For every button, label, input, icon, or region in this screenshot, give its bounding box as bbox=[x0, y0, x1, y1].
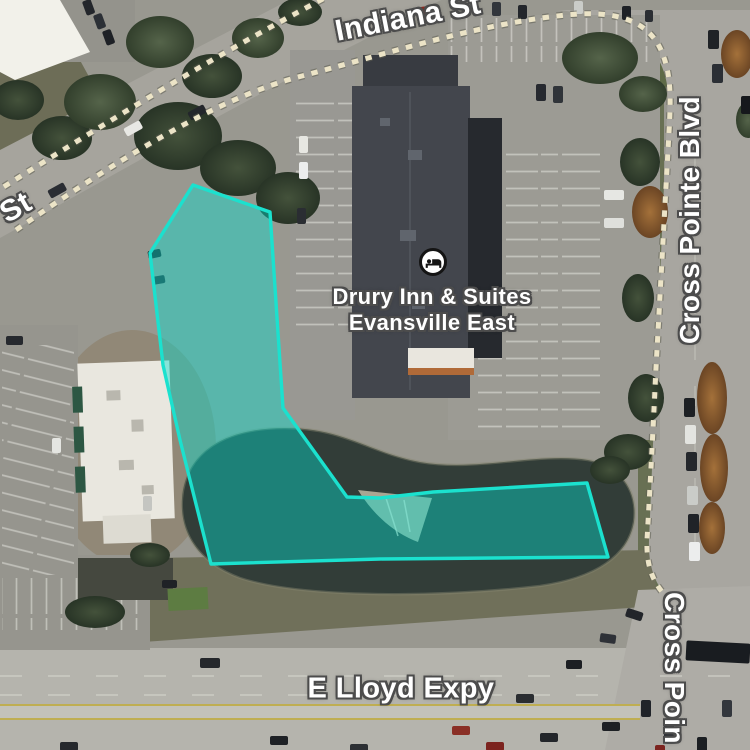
highway-median bbox=[0, 706, 640, 718]
car bbox=[299, 136, 308, 153]
tree bbox=[64, 74, 136, 130]
car bbox=[518, 5, 527, 19]
car bbox=[604, 218, 624, 228]
bed-glyph bbox=[424, 253, 443, 272]
road-label-e-lloyd-expy: E Lloyd Expy bbox=[308, 673, 495, 706]
car bbox=[602, 722, 620, 731]
map-viewport[interactable]: Indiana St St Cross Pointe Blvd E Lloyd … bbox=[0, 0, 750, 750]
yellow-line bbox=[0, 718, 640, 720]
tree bbox=[620, 138, 660, 186]
hotel-roof-north bbox=[363, 55, 458, 91]
restaurant-roof bbox=[77, 360, 174, 521]
car bbox=[536, 84, 546, 101]
rooftop-unit bbox=[400, 230, 416, 241]
car bbox=[641, 700, 651, 717]
rooftop-unit bbox=[380, 118, 390, 126]
poi-label-line1: Drury Inn & Suites bbox=[332, 284, 531, 310]
car bbox=[689, 542, 700, 561]
tree bbox=[562, 32, 638, 84]
rooftop-unit bbox=[119, 460, 134, 471]
truck-trailer bbox=[686, 640, 750, 663]
tree-autumn bbox=[700, 434, 728, 502]
car bbox=[270, 736, 288, 745]
bed-icon[interactable] bbox=[419, 248, 447, 276]
poi-label[interactable]: Drury Inn & Suites Evansville East bbox=[332, 284, 531, 336]
restaurant-wing bbox=[103, 514, 152, 544]
car bbox=[712, 64, 723, 83]
rooftop-unit bbox=[408, 150, 422, 160]
car bbox=[492, 2, 501, 16]
lawn-patch bbox=[167, 587, 208, 611]
tree bbox=[590, 456, 630, 484]
car bbox=[685, 425, 696, 444]
car bbox=[143, 496, 152, 511]
car bbox=[741, 96, 750, 114]
awning bbox=[72, 386, 83, 412]
poi-label-line2: Evansville East bbox=[332, 310, 531, 336]
car bbox=[516, 694, 534, 703]
tree bbox=[65, 596, 125, 628]
tree-autumn bbox=[697, 362, 727, 434]
building-restaurant bbox=[71, 360, 175, 544]
car bbox=[684, 398, 695, 417]
car bbox=[686, 452, 697, 471]
rooftop-unit bbox=[131, 419, 143, 431]
car bbox=[200, 658, 220, 668]
car bbox=[687, 486, 698, 505]
car bbox=[486, 742, 504, 750]
car bbox=[350, 744, 368, 750]
car bbox=[722, 700, 732, 717]
car bbox=[299, 162, 308, 179]
tree bbox=[126, 16, 194, 68]
tree bbox=[622, 274, 654, 322]
hotel-canopy bbox=[408, 348, 474, 370]
car bbox=[6, 336, 23, 345]
car bbox=[708, 30, 719, 49]
car bbox=[162, 580, 177, 588]
parking-lines bbox=[541, 140, 600, 440]
car bbox=[540, 733, 558, 742]
road-label-cross-pointe-blvd: Cross Pointe Blvd bbox=[674, 96, 706, 344]
car bbox=[688, 514, 699, 533]
car bbox=[655, 745, 665, 750]
awning bbox=[75, 466, 86, 492]
car bbox=[553, 86, 563, 103]
car bbox=[297, 208, 306, 224]
satellite-imagery bbox=[0, 0, 750, 750]
road-label-cross-pointe-south: Cross Poin bbox=[658, 592, 690, 744]
car bbox=[52, 438, 61, 453]
awning bbox=[74, 426, 85, 452]
tree bbox=[130, 543, 170, 567]
car bbox=[60, 742, 78, 750]
hotel-canopy-tile bbox=[408, 368, 474, 375]
car bbox=[566, 660, 582, 669]
car bbox=[452, 726, 470, 735]
car bbox=[604, 190, 624, 200]
car bbox=[697, 737, 707, 750]
rooftop-unit bbox=[106, 390, 120, 400]
car bbox=[645, 10, 653, 22]
tree bbox=[619, 76, 667, 112]
rooftop-unit bbox=[142, 485, 154, 494]
parking-lines bbox=[2, 345, 74, 575]
tree-autumn bbox=[699, 502, 725, 554]
